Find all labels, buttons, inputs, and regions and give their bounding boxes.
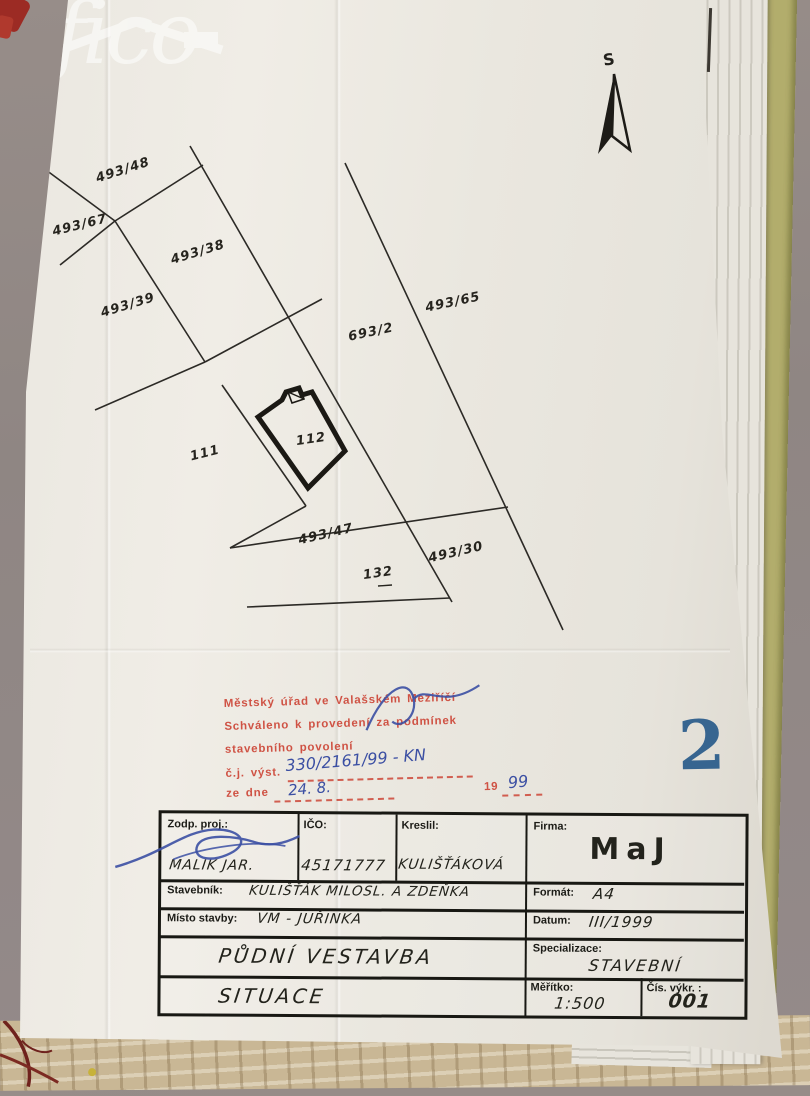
specializace-value: STAVEBNÍ <box>587 956 683 976</box>
dotted-line <box>502 794 542 797</box>
meritko-label: Měřítko: <box>531 981 574 993</box>
official-signature <box>351 675 493 739</box>
datum-label: Datum: <box>533 914 571 926</box>
stamp-date-label: ze dne <box>226 787 269 800</box>
table-rule <box>640 978 642 1016</box>
datum-value: III/1999 <box>588 913 655 931</box>
handwritten-date: 24. 8. <box>287 778 331 799</box>
zodp-proj-signature <box>113 819 303 878</box>
handwritten-year: 99 <box>507 771 529 792</box>
kreslil-value: KULIŠŤÁKOVÁ <box>397 857 505 874</box>
ico-label: IČO: <box>304 819 327 831</box>
table-rule <box>524 815 527 1015</box>
approval-stamp: Městský úřad ve Valašském Meziříčí Schvá… <box>224 690 527 808</box>
ico-value: 45171777 <box>300 856 387 875</box>
stavebnik-label: Stavebník: <box>167 884 223 896</box>
label-underline <box>378 585 392 586</box>
cis-vykr-value: 001 <box>667 990 713 1012</box>
misto-stavby-value: VM - JUŘINKA <box>256 911 363 928</box>
table-rule <box>160 935 744 942</box>
table-rule <box>160 907 744 914</box>
format-label: Formát: <box>533 886 574 898</box>
drawing-title: SITUACE <box>217 984 327 1009</box>
firma-value: MaJ <box>589 832 671 868</box>
stamp-cj-label: č.j. výst. <box>225 766 281 779</box>
stavebnik-value: KULIŠŤÁK MILOSL. A ZDEŇKA <box>248 883 471 900</box>
sheet-edge-tick-marks <box>12 185 29 352</box>
drawing-sheet: fico S <box>0 0 790 1062</box>
project-title: PŮDNÍ VESTAVBA <box>217 944 435 969</box>
specializace-label: Specializace: <box>533 942 602 954</box>
title-block: Zodp. proj.: MALIK JAR. IČO: 45171777 Kr… <box>157 810 748 1020</box>
kreslil-label: Kreslil: <box>402 820 439 832</box>
firma-label: Firma: <box>534 820 568 832</box>
cadastral-map <box>0 0 790 700</box>
table-rule <box>160 975 744 982</box>
red-clip <box>0 15 14 40</box>
sheet-number: 2 <box>677 706 726 787</box>
misto-stavby-label: Místo stavby: <box>167 912 237 924</box>
format-value: A4 <box>592 885 616 903</box>
parcel-boundary-lines <box>46 146 563 630</box>
meritko-value: 1:500 <box>553 994 607 1013</box>
stamp-century: 19 <box>484 781 499 793</box>
